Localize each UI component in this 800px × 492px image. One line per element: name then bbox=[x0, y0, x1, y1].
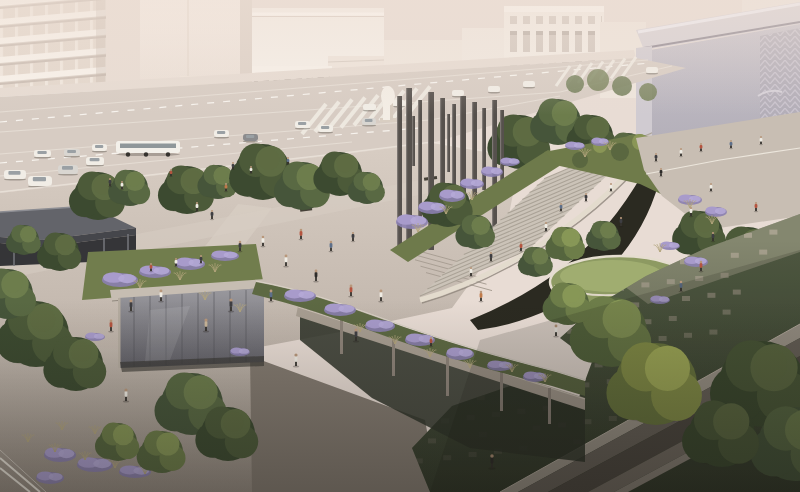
steel-pillar bbox=[447, 114, 450, 172]
car bbox=[58, 165, 78, 176]
steel-pillar bbox=[452, 104, 456, 196]
car bbox=[92, 144, 107, 153]
steel-pillar bbox=[492, 100, 497, 228]
car bbox=[86, 157, 104, 167]
car bbox=[318, 125, 333, 134]
bus bbox=[116, 141, 180, 157]
steel-pillar bbox=[482, 108, 486, 190]
car bbox=[362, 118, 376, 127]
steel-pillar bbox=[418, 100, 422, 220]
bus-group bbox=[116, 141, 180, 157]
car bbox=[64, 149, 80, 158]
steel-pillar bbox=[412, 116, 415, 166]
car bbox=[34, 150, 51, 159]
car bbox=[295, 121, 310, 130]
car bbox=[243, 134, 258, 143]
plaza-rendering bbox=[0, 0, 800, 492]
car bbox=[4, 170, 26, 181]
haze-overlay bbox=[0, 0, 800, 115]
paver bbox=[769, 230, 777, 235]
vignette bbox=[0, 300, 800, 492]
plaza-rendering-stage bbox=[0, 0, 800, 492]
car bbox=[214, 130, 229, 139]
